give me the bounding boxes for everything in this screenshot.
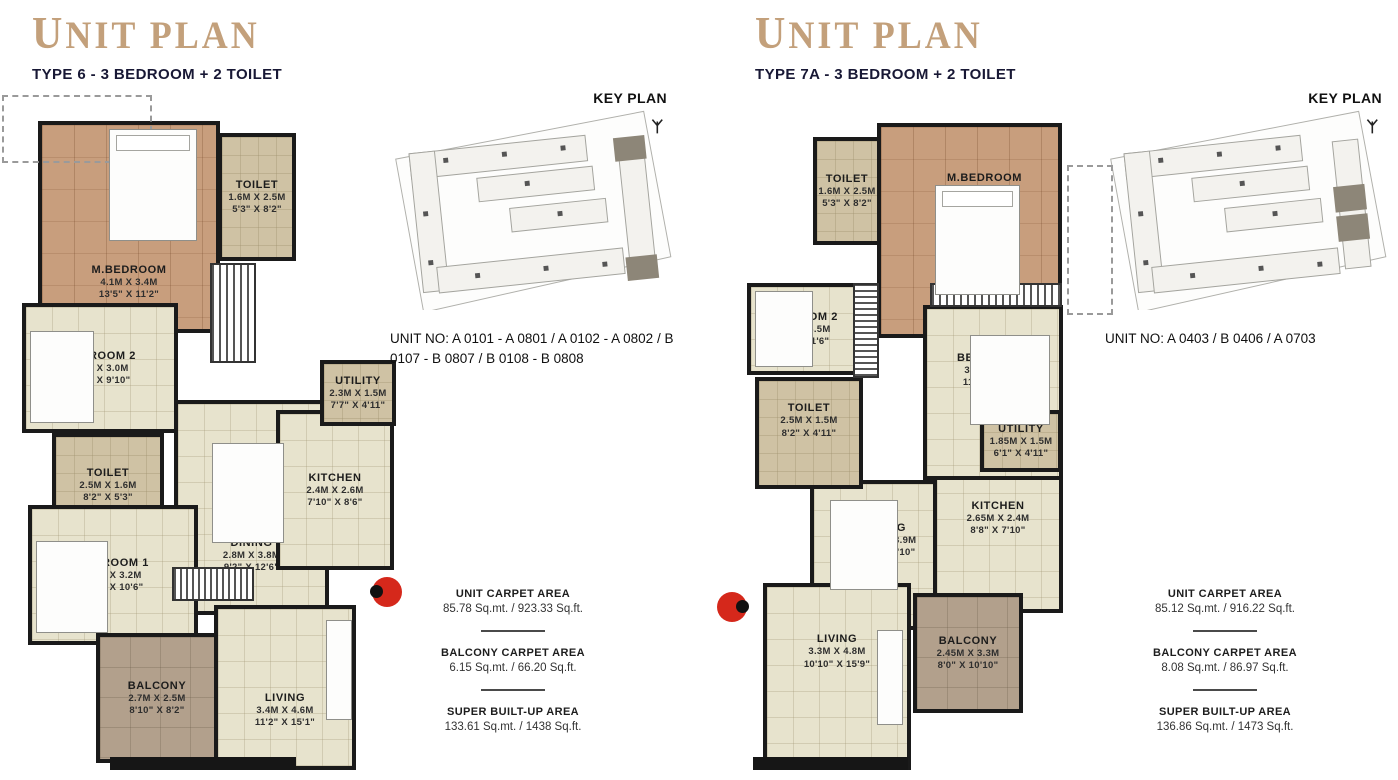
- room-dim-imperial: 8'2" X 5'3": [79, 492, 136, 504]
- divider: [481, 630, 545, 632]
- room-name: TOILET: [780, 401, 837, 415]
- key-plan-sketch: [390, 110, 675, 310]
- key-plan-title: KEY PLAN: [390, 90, 675, 106]
- area-stats-left: UNIT CARPET AREA 85.78 Sq.mt. / 923.33 S…: [418, 588, 608, 733]
- area-value: 8.08 Sq.mt. / 86.97 Sq.ft.: [1130, 662, 1320, 674]
- area-value: 6.15 Sq.mt. / 66.20 Sq.ft.: [418, 662, 608, 674]
- room-dim-imperial: 8'2" X 4'11": [780, 428, 837, 440]
- page-title: UNIT PLAN: [32, 8, 282, 60]
- wardrobe-icon: [853, 283, 879, 378]
- north-arrow-icon: [652, 120, 662, 134]
- room-dim-metric: 2.8M X 3.8M: [223, 550, 280, 562]
- room-dim-metric: 3.4M X 4.6M: [255, 705, 315, 717]
- room-dim-imperial: 10'10" X 15'9": [804, 659, 870, 671]
- room-dim-imperial: 8'8" X 7'10": [967, 525, 1030, 537]
- north-arrow-icon: [1367, 120, 1377, 134]
- bed-icon: [935, 185, 1020, 295]
- room-dim-imperial: 7'7" X 4'11": [329, 400, 386, 412]
- bed-icon: [109, 129, 197, 241]
- area-stats-right: UNIT CARPET AREA 85.12 Sq.mt. / 916.22 S…: [1130, 588, 1320, 733]
- room-dim-metric: 2.45M X 3.3M: [937, 648, 1000, 660]
- divider: [481, 689, 545, 691]
- sofa-icon: [877, 630, 903, 725]
- bed-icon: [30, 331, 94, 423]
- room-name: M.BEDROOM: [91, 263, 166, 277]
- unit-number-text: UNIT NO: A 0403 / B 0406 / A 0703: [1105, 329, 1395, 349]
- room-balcony: BALCONY 2.7M X 2.5M 8'10" X 8'2": [96, 633, 218, 763]
- bed-icon: [36, 541, 108, 633]
- key-plan-right: KEY PLAN: [1105, 90, 1390, 349]
- divider: [1193, 689, 1257, 691]
- room-toilet-1: TOILET 1.6M X 2.5M 5'3" X 8'2": [813, 137, 881, 245]
- bed-icon: [755, 291, 813, 367]
- area-value: 85.12 Sq.mt. / 916.22 Sq.ft.: [1130, 603, 1320, 615]
- room-name: LIVING: [804, 632, 870, 646]
- room-dim-metric: 2.4M X 2.6M: [306, 485, 363, 497]
- room-dim-metric: 4.1M X 3.4M: [91, 277, 166, 289]
- room-name: M.BEDROOM: [947, 171, 1022, 185]
- room-dim-metric: 2.3M X 1.5M: [329, 388, 386, 400]
- room-toilet-1: TOILET 1.6M X 2.5M 5'3" X 8'2": [218, 133, 296, 261]
- room-dim-imperial: 5'3" X 8'2": [818, 198, 875, 210]
- brochure-page: UNIT PLAN TYPE 6 - 3 BEDROOM + 2 TOILET …: [0, 0, 1398, 780]
- room-dim-metric: 3.3M X 4.8M: [804, 646, 870, 658]
- room-name: TOILET: [818, 172, 875, 186]
- room-name: BALCONY: [937, 634, 1000, 648]
- room-name: TOILET: [228, 178, 285, 192]
- dining-table-icon: [830, 500, 898, 590]
- page-title: UNIT PLAN: [755, 8, 1016, 60]
- room-name: KITCHEN: [967, 499, 1030, 513]
- dining-table-icon: [212, 443, 284, 543]
- area-value: 136.86 Sq.mt. / 1473 Sq.ft.: [1130, 721, 1320, 733]
- sofa-icon: [326, 620, 352, 720]
- key-plan-left: KEY PLAN: [390, 90, 675, 370]
- room-dim-metric: 1.6M X 2.5M: [228, 192, 285, 204]
- room-dim-metric: 1.85M X 1.5M: [990, 436, 1053, 448]
- room-name: LIVING: [255, 691, 315, 705]
- bed-icon: [970, 335, 1050, 425]
- area-value: 85.78 Sq.mt. / 923.33 Sq.ft.: [418, 603, 608, 615]
- plan-type-subtitle: TYPE 6 - 3 BEDROOM + 2 TOILET: [32, 66, 282, 83]
- room-dim-imperial: 11'2" X 15'1": [255, 717, 315, 729]
- room-toilet-2: TOILET 2.5M X 1.5M 8'2" X 4'11": [755, 377, 863, 489]
- projection-outline: [1067, 165, 1113, 315]
- room-dim-metric: 2.5M X 1.5M: [780, 415, 837, 427]
- room-name: TOILET: [79, 466, 136, 480]
- floor-plan-type-7a: DINING 2.35M X 3.9M 7'9" X 12'10" KITCHE…: [725, 105, 1070, 770]
- room-kitchen: KITCHEN 2.4M X 2.6M 7'10" X 8'6": [276, 410, 394, 570]
- room-dim-imperial: 7'10" X 8'6": [306, 497, 363, 509]
- key-plan-title: KEY PLAN: [1105, 90, 1390, 106]
- plan-type-subtitle: TYPE 7A - 3 BEDROOM + 2 TOILET: [755, 66, 1016, 83]
- unit-number-text: UNIT NO: A 0101 - A 0801 / A 0102 - A 08…: [390, 329, 680, 370]
- room-name: BALCONY: [128, 679, 187, 693]
- room-dim-imperial: 13'5" X 11'2": [91, 289, 166, 301]
- right-plan-header: UNIT PLAN TYPE 7A - 3 BEDROOM + 2 TOILET: [755, 8, 1016, 83]
- room-kitchen: KITCHEN 2.65M X 2.4M 8'8" X 7'10": [933, 463, 1063, 613]
- key-plan-sketch: [1105, 110, 1390, 310]
- divider: [1193, 630, 1257, 632]
- room-utility: UTILITY 2.3M X 1.5M 7'7" X 4'11": [320, 360, 396, 426]
- pillow-icon: [942, 191, 1013, 207]
- room-dim-imperial: 8'0" X 10'10": [937, 660, 1000, 672]
- room-dim-metric: 1.6M X 2.5M: [818, 186, 875, 198]
- wardrobe-icon: [210, 263, 256, 363]
- wall-segment: [753, 757, 908, 770]
- area-label: BALCONY CARPET AREA: [1130, 647, 1320, 659]
- wardrobe-icon: [172, 567, 254, 601]
- room-name: KITCHEN: [306, 471, 363, 485]
- area-label: SUPER BUILT-UP AREA: [418, 706, 608, 718]
- entrance-marker: [372, 577, 402, 607]
- room-dim-metric: 2.65M X 2.4M: [967, 513, 1030, 525]
- left-plan-header: UNIT PLAN TYPE 6 - 3 BEDROOM + 2 TOILET: [32, 8, 282, 83]
- entrance-marker: [717, 592, 747, 622]
- wall-segment: [110, 757, 296, 770]
- area-value: 133.61 Sq.mt. / 1438 Sq.ft.: [418, 721, 608, 733]
- pillow-icon: [116, 135, 190, 151]
- room-dim-imperial: 6'1" X 4'11": [990, 448, 1053, 460]
- area-label: BALCONY CARPET AREA: [418, 647, 608, 659]
- room-balcony: BALCONY 2.45M X 3.3M 8'0" X 10'10": [913, 593, 1023, 713]
- area-label: UNIT CARPET AREA: [1130, 588, 1320, 600]
- area-label: SUPER BUILT-UP AREA: [1130, 706, 1320, 718]
- area-label: UNIT CARPET AREA: [418, 588, 608, 600]
- room-dim-imperial: 5'3" X 8'2": [228, 204, 285, 216]
- room-dim-metric: 2.5M X 1.6M: [79, 480, 136, 492]
- floor-plan-type-6: DINING 2.8M X 3.8M 9'2" X 12'6" KITCHEN …: [14, 105, 426, 770]
- room-name: UTILITY: [329, 374, 386, 388]
- room-dim-metric: 2.7M X 2.5M: [128, 693, 187, 705]
- room-dim-imperial: 8'10" X 8'2": [128, 705, 187, 717]
